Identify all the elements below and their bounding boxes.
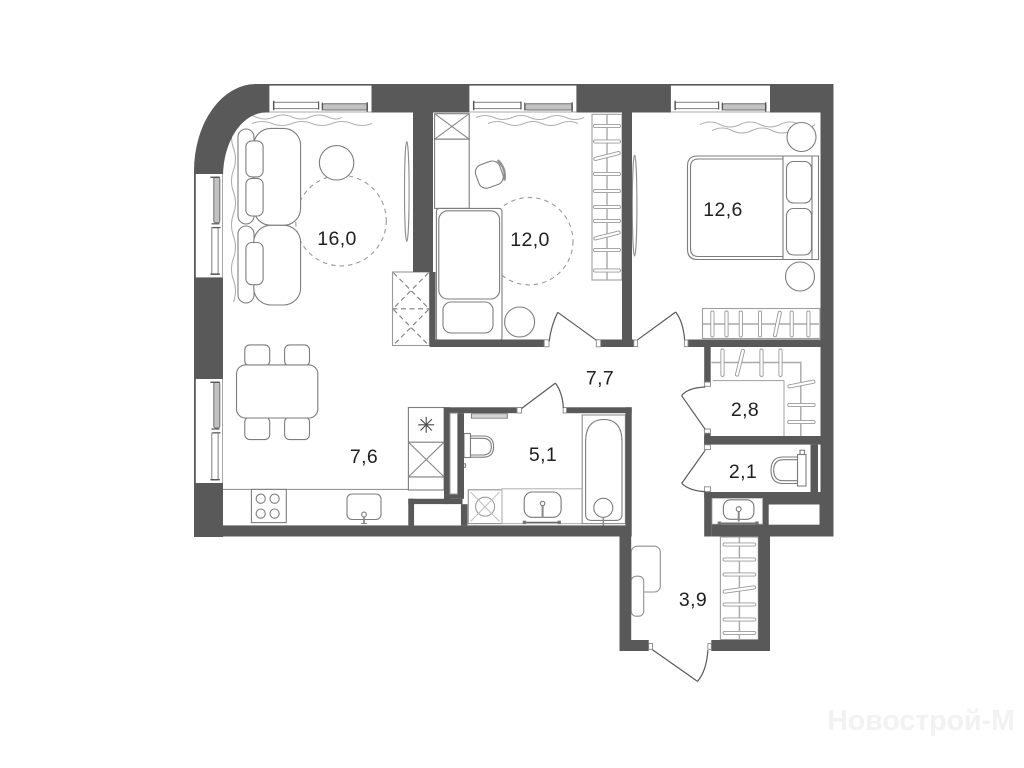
svg-text:12,0: 12,0 [510,229,550,251]
svg-text:Новострой-М: Новострой-М [827,705,1015,737]
svg-text:2,8: 2,8 [731,399,759,421]
svg-text:16,0: 16,0 [317,228,357,250]
svg-text:7,7: 7,7 [586,368,614,390]
svg-text:5,1: 5,1 [529,444,557,466]
svg-text:12,6: 12,6 [703,199,743,221]
svg-text:2,1: 2,1 [729,461,757,483]
svg-text:3,9: 3,9 [679,589,707,611]
svg-text:7,6: 7,6 [350,446,378,468]
